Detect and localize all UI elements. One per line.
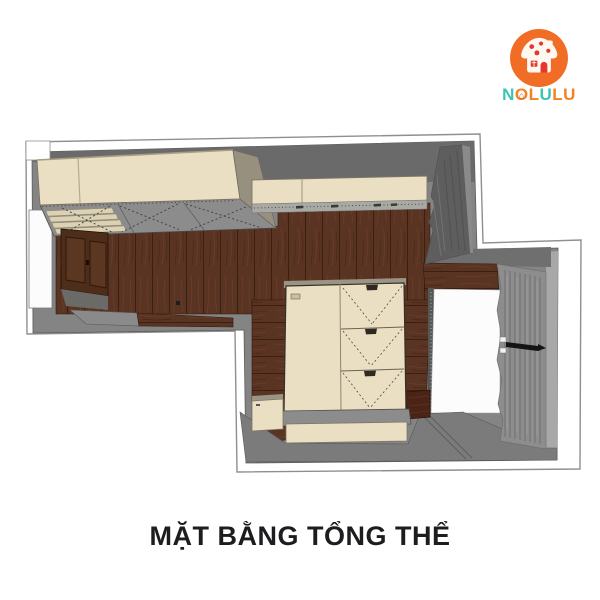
logo-wordmark: NO⌂LULU — [494, 86, 584, 104]
logo-letter: U — [563, 86, 576, 104]
wall-notch — [26, 141, 50, 160]
logo-house-icon — [509, 28, 569, 88]
logo-letter: N — [502, 86, 515, 104]
wardrobe-body — [284, 283, 406, 413]
door-handle-plate — [291, 294, 300, 299]
logo-letter: L — [529, 86, 540, 104]
small-cabinet — [252, 399, 283, 431]
wood-passage — [423, 263, 499, 291]
right-wall-strip — [546, 251, 558, 459]
right-room-floor — [431, 289, 500, 413]
rail-bracket — [500, 337, 506, 342]
logo-letter: O⌂ — [515, 86, 529, 104]
logo-o-house-icon: ⌂ — [519, 91, 525, 100]
nolulu-logo: NO⌂LULU — [494, 28, 584, 104]
logo-letter: U — [539, 86, 552, 104]
caption-title: MẶT BẰNG TỔNG THỂ — [0, 521, 600, 552]
wardrobe-plinth — [286, 422, 407, 443]
logo-letter: L — [552, 86, 563, 104]
floor-outlet — [176, 301, 180, 305]
curtain-right-room — [497, 264, 546, 449]
rail-bracket — [500, 348, 506, 353]
